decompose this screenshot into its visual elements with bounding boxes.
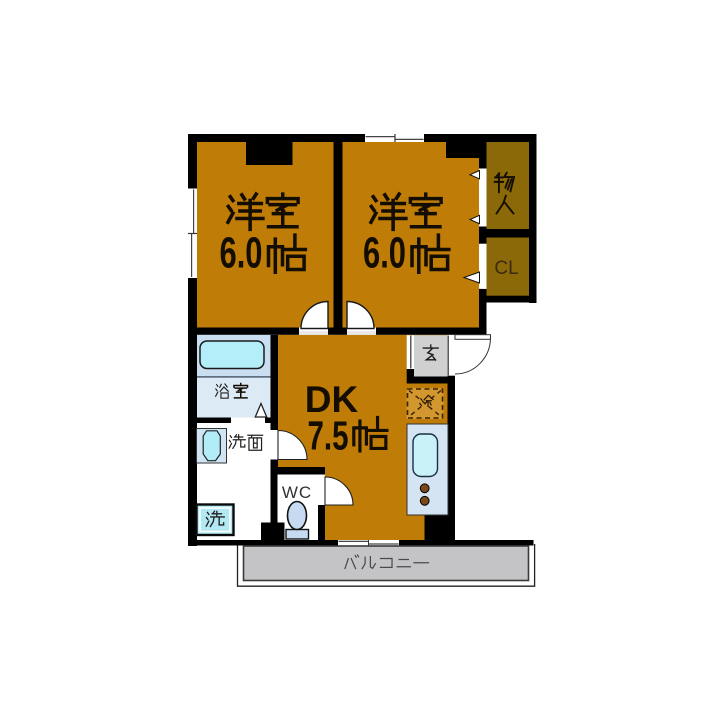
svg-text:7.5: 7.5 <box>308 413 349 459</box>
svg-text:6.0: 6.0 <box>220 229 263 278</box>
svg-text:CL: CL <box>494 258 518 279</box>
svg-text:WC: WC <box>282 483 312 502</box>
svg-text:6.0: 6.0 <box>363 229 406 278</box>
